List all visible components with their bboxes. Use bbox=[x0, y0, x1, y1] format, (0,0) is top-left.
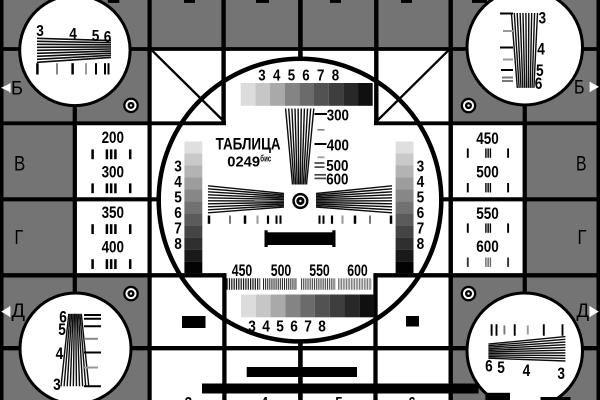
svg-text:4: 4 bbox=[56, 345, 64, 363]
svg-text:8: 8 bbox=[174, 236, 182, 253]
svg-text:бис: бис bbox=[260, 153, 271, 163]
svg-text:6: 6 bbox=[417, 205, 425, 222]
svg-text:Г: Г bbox=[578, 227, 587, 249]
svg-text:500: 500 bbox=[271, 262, 292, 280]
svg-text:6: 6 bbox=[535, 75, 543, 93]
svg-text:7: 7 bbox=[174, 221, 182, 238]
svg-text:400: 400 bbox=[327, 137, 349, 154]
svg-text:200: 200 bbox=[102, 128, 124, 147]
svg-text:450: 450 bbox=[476, 129, 499, 148]
svg-text:600: 600 bbox=[326, 171, 348, 188]
svg-text:4: 4 bbox=[69, 26, 77, 43]
svg-text:550: 550 bbox=[309, 262, 330, 280]
svg-text:4: 4 bbox=[273, 68, 281, 85]
svg-text:6: 6 bbox=[290, 319, 298, 336]
svg-text:В: В bbox=[576, 153, 587, 176]
svg-text:300: 300 bbox=[102, 163, 124, 182]
svg-text:5: 5 bbox=[92, 28, 100, 45]
svg-text:4: 4 bbox=[174, 174, 182, 191]
svg-text:7: 7 bbox=[304, 319, 312, 336]
svg-text:5: 5 bbox=[497, 359, 505, 377]
svg-text:500: 500 bbox=[476, 162, 499, 181]
svg-text:8: 8 bbox=[332, 68, 340, 85]
svg-text:4: 4 bbox=[523, 362, 531, 380]
svg-text:Д: Д bbox=[577, 300, 590, 322]
svg-text:5: 5 bbox=[58, 321, 66, 339]
svg-text:Д: Д bbox=[12, 300, 26, 322]
svg-text:В: В bbox=[14, 153, 25, 176]
svg-text:600: 600 bbox=[476, 237, 499, 256]
svg-text:Б: Б bbox=[11, 78, 23, 100]
svg-text:5: 5 bbox=[288, 68, 296, 85]
svg-text:450: 450 bbox=[232, 262, 253, 280]
svg-text:ТАБЛИЦА: ТАБЛИЦА bbox=[216, 135, 281, 153]
svg-text:5: 5 bbox=[276, 319, 284, 336]
svg-text:5: 5 bbox=[174, 190, 182, 207]
svg-text:6: 6 bbox=[174, 205, 182, 222]
svg-text:350: 350 bbox=[102, 203, 124, 222]
svg-text:6: 6 bbox=[408, 395, 416, 400]
svg-text:3: 3 bbox=[417, 158, 425, 175]
svg-text:4: 4 bbox=[417, 174, 425, 191]
svg-text:6: 6 bbox=[302, 68, 310, 85]
svg-text:3: 3 bbox=[36, 23, 44, 40]
svg-text:Г: Г bbox=[15, 227, 24, 249]
svg-text:400: 400 bbox=[102, 238, 124, 257]
svg-text:7: 7 bbox=[417, 221, 425, 238]
svg-text:8: 8 bbox=[318, 319, 326, 336]
svg-text:4: 4 bbox=[537, 41, 545, 59]
svg-text:3: 3 bbox=[539, 10, 547, 28]
svg-text:6: 6 bbox=[485, 357, 493, 375]
svg-text:5: 5 bbox=[417, 190, 425, 207]
svg-text:6: 6 bbox=[104, 29, 112, 46]
svg-text:3: 3 bbox=[248, 319, 256, 336]
svg-text:600: 600 bbox=[347, 262, 368, 280]
svg-text:4: 4 bbox=[261, 395, 269, 400]
svg-text:3: 3 bbox=[174, 158, 182, 175]
svg-text:3: 3 bbox=[53, 376, 61, 394]
svg-text:3: 3 bbox=[185, 395, 193, 400]
svg-text:Б: Б bbox=[574, 77, 585, 99]
svg-text:300: 300 bbox=[327, 107, 349, 124]
svg-text:3: 3 bbox=[258, 68, 266, 85]
svg-text:7: 7 bbox=[317, 68, 324, 85]
svg-text:550: 550 bbox=[476, 204, 499, 223]
svg-text:0249: 0249 bbox=[227, 154, 260, 171]
svg-text:4: 4 bbox=[262, 319, 270, 336]
svg-text:5: 5 bbox=[335, 395, 343, 400]
svg-text:8: 8 bbox=[417, 236, 425, 253]
svg-text:3: 3 bbox=[557, 365, 565, 383]
